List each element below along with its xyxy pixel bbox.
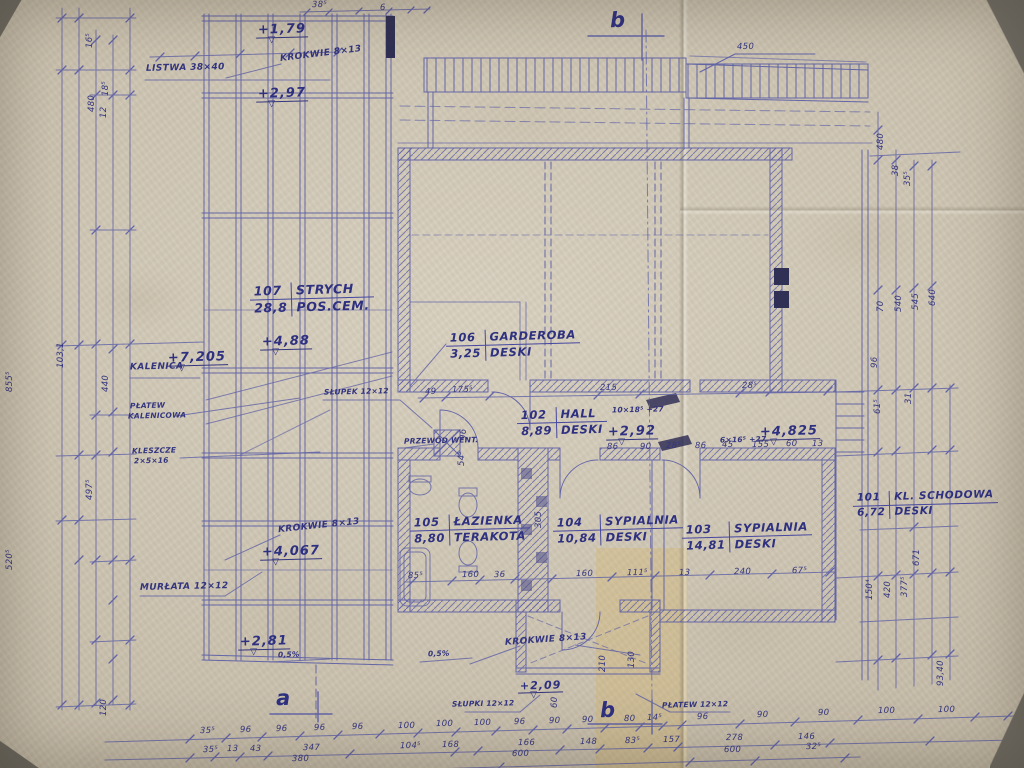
blueprint-linework [0,0,1024,768]
dim-label: 175⁵ [452,386,473,396]
dim-label: 96 [697,713,709,723]
dim-label: 160 [462,571,479,581]
photo-corner-bottom-left [0,723,55,768]
note-slupek: SŁUPEK 12×12 [324,387,389,397]
dim-label: 130 [628,651,637,668]
dim-label: 38⁵ [312,1,327,11]
dim-label: 540 [895,295,904,312]
dim-label: 600 [724,746,741,756]
dim-label: 155 [752,441,769,451]
dim-label: 100 [436,720,453,730]
note-stair-formula-1: 10×18⁵ +27 [612,405,664,414]
dim-label: 480 [88,95,97,112]
level-4-067: +4,067▽ [260,539,323,568]
dim-label: 305 [535,511,544,528]
dim-label: 96 [460,429,469,440]
dim-label: 90 [757,711,769,721]
dim-label: 6 [380,4,386,13]
dim-label: 166 [518,739,535,749]
room-label-107: 107STRYCH 28,8POS.CEM. [250,280,374,317]
dim-label: 32⁵ [806,743,821,753]
note-slope-mid: 0,5% [428,650,450,659]
dim-label: 93,40 [937,660,946,686]
dim-label: 96 [352,723,364,733]
dim-label: 70 [877,301,886,312]
dim-label: 90 [818,709,830,719]
note-platew-1: PŁATEW [130,402,165,411]
section-marker-a: a [276,686,291,710]
dim-label: 545 [912,293,921,310]
level-4-88: +4,88▽ [260,329,313,357]
dim-label: 67⁵ [792,567,807,577]
dim-label: 160 [576,570,593,580]
dim-label: 86 [607,443,619,453]
room-label-106: 106GARDEROBA 3,25DESKI [446,327,581,361]
dim-label: 600 [512,750,529,760]
dim-label: 90 [640,443,652,453]
room-label-105: 105ŁAZIENKA 8,80TERAKOTA [410,512,531,546]
dim-label: 80 [624,715,636,725]
note-slupki: SŁUPKI 12×12 [452,699,515,709]
top-band [400,54,870,148]
dim-label: 420 [884,581,893,598]
dim-label: 377⁵ [901,576,910,597]
dim-label: 35⁵ [203,746,218,756]
dim-label: 497⁵ [86,479,95,500]
dim-label: 18⁵ [102,81,111,96]
photo-corner-bottom-right [990,558,1024,768]
section-marker-b-bottom: b [600,698,616,723]
dim-label: 96 [276,725,288,735]
dim-label: 100 [398,722,415,732]
note-kleszcze-1: KLESZCZE [132,447,176,456]
dim-label: 103,1 [57,342,66,368]
room-label-102: 102HALL 8,89DESKI [517,406,607,439]
dim-label: 96 [314,724,326,734]
dim-label: 100 [474,719,491,729]
dim-label: 520⁵ [6,549,15,570]
dim-label: 38 [892,165,901,176]
dim-label: 83⁵ [625,737,640,747]
section-lines [270,14,664,734]
dim-label: 28⁵ [666,442,681,452]
dim-label: 380 [292,755,309,765]
dim-label: 13 [227,745,239,755]
dim-label: 35⁵ [200,727,215,737]
truss-band [202,14,395,718]
dim-label: 111⁵ [627,569,648,579]
note-kalenica: KALENICA [130,362,184,373]
dim-label: 54⁵ [458,451,467,466]
dim-label: 480 [877,133,886,150]
level-2-97: +2,97▽ [256,81,309,109]
dim-label: 100 [938,706,955,716]
note-listwa: LISTWA 38×40 [146,63,225,75]
dim-label: 61⁵ [874,399,883,414]
dim-label: 157 [663,736,680,746]
dim-label: 100 [878,707,895,717]
room-label-104: 104SYPIALNIA 10,84DESKI [553,512,684,546]
section-marker-b-top: b [610,8,626,33]
dim-label: 855⁵ [6,371,15,392]
dim-label: 49 [425,388,437,398]
blueprint-photo: 107STRYCH 28,8POS.CEM. 106GARDEROBA 3,25… [0,0,1024,768]
note-platew-dolna: PŁATEW 12×12 [662,700,728,710]
dim-label: 96 [240,726,252,736]
dim-label: 104⁵ [400,742,421,752]
dim-label: 347 [303,744,320,754]
staircase [836,150,868,680]
note-slope-left: 0,5% [278,651,300,660]
dim-label: 150⁴ [866,579,875,600]
dim-label: 36 [494,571,506,581]
dim-label: 278 [726,734,743,744]
level-1-79: +1,79▽ [256,17,309,45]
dim-label: 215 [600,384,617,394]
dim-label: 120 [100,699,109,716]
dim-label: 31 [905,393,914,404]
dim-label: 85⁵ [408,572,423,582]
note-kleszcze-2: 2×5×16 [134,457,169,466]
note-platew-2: KALENICOWA [128,411,186,420]
dim-label: 210 [599,655,608,672]
dim-label: 35⁵ [904,171,913,186]
dim-label: 16⁵ [86,33,95,48]
dim-label: 96 [871,357,880,368]
photo-corner-top-right [982,0,1024,175]
dim-label: 440 [102,375,111,392]
room-label-101: 101KL. SCHODOWA 6,72DESKI [853,488,999,520]
dim-label: 640 [929,289,938,306]
dim-label: 60 [551,697,560,708]
dim-label: 96 [514,718,526,728]
dim-label: 45 [722,441,734,451]
dim-label: 28⁵ [742,382,757,392]
photo-corner-top-left [0,0,30,70]
dim-label: 148 [580,738,597,748]
room-label-103: 103SYPIALNIA 14,81DESKI [682,519,813,553]
dim-label: 168 [442,741,459,751]
dim-label: 240 [734,568,751,578]
dim-label: 13 [679,569,691,579]
dim-label: 43 [250,745,262,755]
note-murlata: MURŁATA 12×12 [140,582,229,594]
dim-label: 671 [913,549,922,566]
dim-label: 13 [812,440,824,450]
dim-label: 12 [100,107,109,118]
dim-label: 90 [582,716,594,726]
dim-label: 90 [549,717,561,727]
dim-label: 60 [786,440,798,450]
dim-label: 86 [695,442,707,452]
dim-label: 450 [737,43,754,53]
dim-label: 14⁵ [647,714,662,724]
